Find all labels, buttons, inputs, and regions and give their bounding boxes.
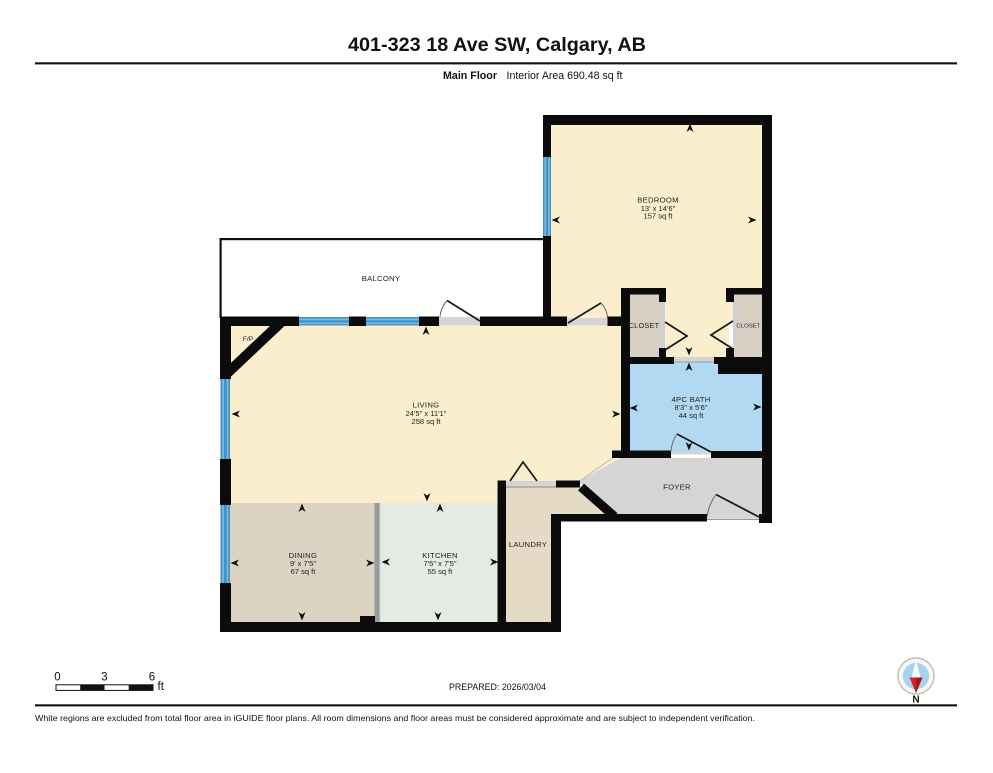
svg-text:258 sq ft: 258 sq ft — [412, 417, 442, 426]
svg-text:LAUNDRY: LAUNDRY — [509, 540, 547, 549]
svg-text:CLOSET: CLOSET — [736, 324, 760, 330]
svg-text:BALCONY: BALCONY — [362, 274, 401, 283]
svg-text:0: 0 — [54, 672, 60, 684]
svg-text:ft: ft — [158, 681, 165, 693]
svg-text:157 sq ft: 157 sq ft — [644, 212, 674, 221]
svg-text:White regions are excluded fro: White regions are excluded from total fl… — [35, 713, 755, 723]
svg-text:PREPARED: 2026/03/04: PREPARED: 2026/03/04 — [449, 682, 547, 693]
svg-text:Main Floor: Main Floor — [443, 70, 498, 82]
svg-text:44 sq ft: 44 sq ft — [679, 411, 705, 420]
svg-text:67 sq ft: 67 sq ft — [291, 567, 317, 576]
svg-text:55 sq ft: 55 sq ft — [428, 567, 454, 576]
svg-text:Interior Area 690.48 sq ft: Interior Area 690.48 sq ft — [507, 70, 623, 82]
svg-text:FOYER: FOYER — [663, 483, 691, 492]
svg-text:CLOSET: CLOSET — [629, 321, 660, 330]
svg-text:3: 3 — [101, 672, 107, 684]
svg-text:401-323 18 Ave SW, Calgary, AB: 401-323 18 Ave SW, Calgary, AB — [348, 34, 646, 56]
svg-text:N: N — [912, 695, 919, 706]
svg-text:F/P: F/P — [243, 336, 254, 343]
svg-text:6: 6 — [149, 672, 155, 684]
